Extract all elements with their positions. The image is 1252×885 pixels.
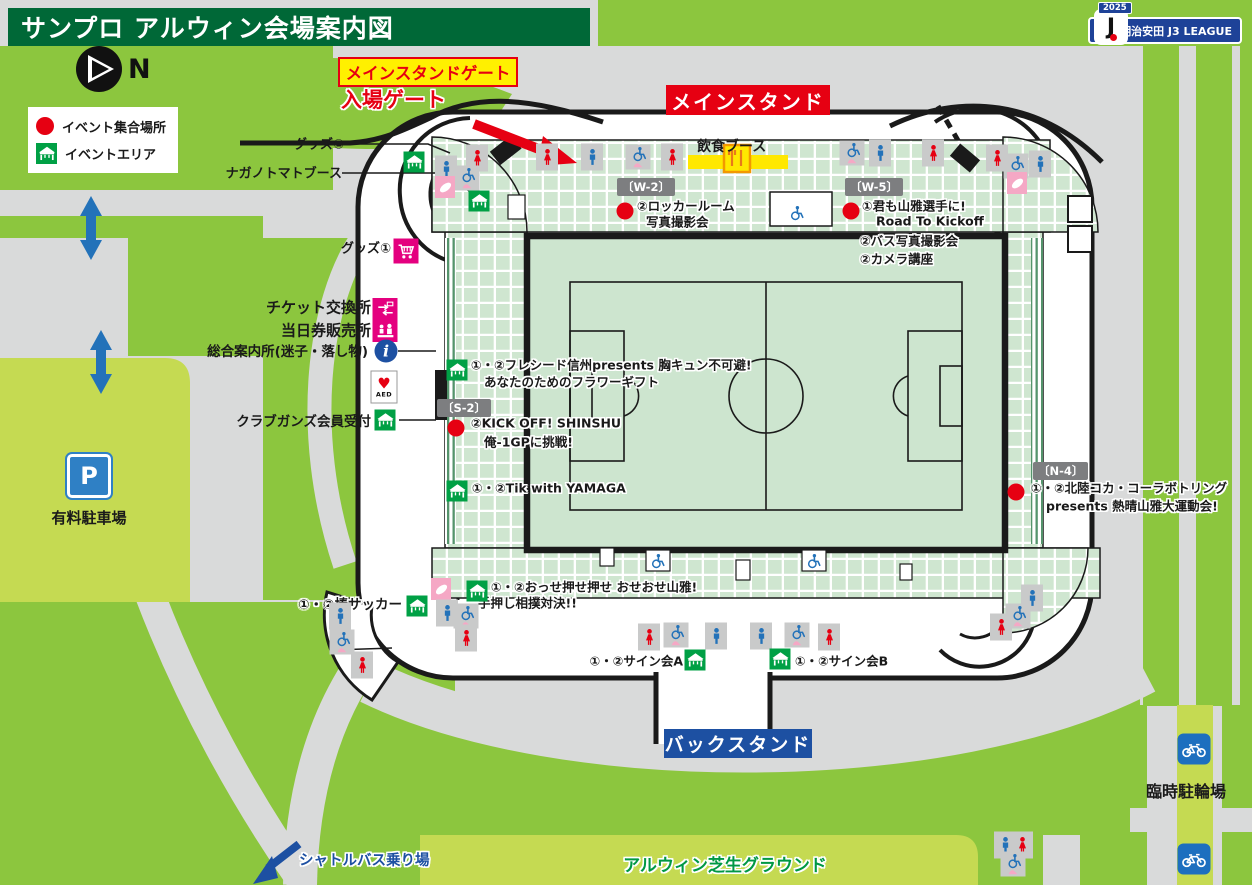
event-n4-line2: presents 熱晴山雅大運動会!: [1046, 496, 1218, 515]
event-area-tent-icon: [407, 596, 428, 617]
mens-toilet-icon: [1029, 151, 1051, 178]
event-w2-line2: 写真撮影会: [646, 212, 709, 231]
event-area-tent-icon: [447, 360, 468, 381]
nursing-room-icon: [1007, 172, 1027, 194]
accessible-toilet-icon: [785, 623, 810, 648]
back-stand-label: バックスタンド: [664, 729, 812, 758]
event-tik-line1: ①・②Tik with YAMAGA: [472, 478, 626, 497]
event-w5-line3: ②バス写真撮影会: [860, 231, 958, 250]
section-w2-label: 〔W-2〕: [617, 178, 675, 196]
womens-toilet-icon: [990, 614, 1012, 641]
event-kickoff-line1: ②KICK OFF! SHINSHU: [471, 416, 621, 431]
wheelchair-seating-icon: [787, 205, 805, 222]
food-booth-label: 飲食ブース: [697, 136, 766, 156]
event-area-tent-icon: [375, 410, 396, 431]
main-stand-label: メインスタンド: [666, 85, 830, 115]
bicycle-parking-icon: [1178, 844, 1211, 875]
north-compass: N: [76, 46, 186, 96]
accessible-toilet-icon: [626, 145, 651, 170]
accessible-toilet-icon: [455, 166, 480, 191]
womens-toilet-icon: [638, 624, 660, 651]
page-title: サンプロ アルウィン会場案内図: [8, 9, 394, 45]
map-background: [0, 0, 1252, 885]
event-meeting-point-icon: [448, 420, 465, 437]
accessible-toilet-icon: [664, 623, 689, 648]
event-kickoff-line2: 俺-1GPに挑戦!: [484, 432, 573, 451]
event-meeting-point-icon: [617, 203, 634, 220]
compass-north-label: N: [128, 54, 151, 85]
womens-toilet-icon: [536, 144, 558, 171]
womens-toilet-icon: [922, 140, 944, 167]
legend-area-label: イベントエリア: [65, 144, 156, 163]
wheelchair-seating-icon: [804, 553, 822, 570]
event-area-tent-icon: [685, 650, 706, 671]
venue-map: サンプロ アルウィン会場案内図 2025 J 明治安田 J3 LEAGUE N …: [0, 0, 1252, 885]
mens-toilet-icon: [581, 144, 603, 171]
compass-arrow-inner: [92, 60, 109, 78]
event-w5-line4: ②カメラ講座: [860, 249, 933, 268]
womens-toilet-icon: [455, 625, 477, 652]
legend-meeting-point: イベント集合場所: [36, 117, 178, 136]
event-area-tent-icon: [404, 152, 425, 173]
section-s2-label: 〔S-2〕: [437, 399, 491, 417]
event-area-tent-icon: [447, 481, 468, 502]
event-w5-line1: ①君も山雅選手に!: [862, 196, 966, 215]
same-day-ticket-label: 当日券販売所: [281, 320, 371, 341]
parking-icon: P: [67, 454, 111, 498]
mens-toilet-icon: [869, 140, 891, 167]
j-league-crest-dot: [1110, 34, 1117, 41]
ticket-exchange-icon: [373, 298, 398, 320]
event-area-tent-icon: [36, 143, 57, 164]
event-n4-line1: ①・②北陸コカ・コーラボトリング: [1031, 478, 1227, 497]
event-meeting-point-icon: [1008, 484, 1025, 501]
event-sign-b-label: ①・②サイン会B: [795, 651, 888, 670]
goods-shop-icon: [394, 239, 419, 264]
ticket-exchange-label: チケット交換所: [266, 297, 371, 318]
paid-parking-label: 有料駐車場: [28, 507, 150, 528]
event-meeting-point-icon: [36, 117, 54, 135]
j3-league-logo: 2025 J 明治安田 J3 LEAGUE: [1088, 2, 1244, 46]
nagano-tomato-booth-label: ナガノトマトブース: [226, 163, 342, 182]
info-center-label: 総合案内所(迷子・落し物): [207, 340, 368, 360]
entrance-gate-label: 入場ゲート: [341, 84, 446, 114]
goods1-label: グッズ①: [341, 238, 391, 257]
j3-league-name: 明治安田 J3 LEAGUE: [1120, 23, 1240, 39]
j3-year-badge: 2025: [1098, 2, 1132, 14]
event-w5-line2: Road To Kickoff: [876, 214, 984, 229]
event-flower-line2: あなたのためのフラワーギフト: [484, 372, 659, 391]
accessible-toilet-icon: [840, 141, 865, 166]
page-title-bar: サンプロ アルウィン会場案内図: [8, 8, 590, 46]
information-icon: i: [375, 340, 398, 363]
goods2-label: グッズ②: [294, 134, 344, 153]
shuttle-bus-label: シャトルバス乗り場: [299, 849, 430, 870]
map-legend: イベント集合場所 イベントエリア: [28, 107, 178, 173]
club-gahnz-label: クラブガンズ会員受付: [236, 410, 371, 430]
accessible-toilet-icon: [1001, 852, 1026, 877]
mens-toilet-icon: [329, 603, 351, 630]
event-area-tent-icon: [770, 649, 791, 670]
main-stand-gate-label: メインスタンドゲート: [338, 57, 518, 87]
event-area-tent-icon: [467, 581, 488, 602]
lawn-ground-label: アルウィン芝生グラウンド: [560, 851, 890, 876]
event-area-tent-icon: [469, 191, 490, 212]
aed-icon: ♥AED: [371, 371, 398, 404]
event-osse-line2: 手押し相撲対決!!: [478, 593, 577, 612]
bicycle-parking-icon: [1178, 734, 1211, 765]
event-meeting-point-icon: [843, 203, 860, 220]
event-sign-a-label: ①・②サイン会A: [590, 651, 683, 670]
bicycle-parking-label: 臨時駐輪場: [1146, 778, 1226, 802]
legend-meeting-label: イベント集合場所: [62, 117, 166, 136]
mens-toilet-icon: [750, 623, 772, 650]
nursing-room-icon: [431, 578, 451, 600]
nursing-room-icon: [435, 176, 455, 198]
wheelchair-seating-icon: [648, 553, 666, 570]
womens-toilet-icon: [351, 652, 373, 679]
mens-toilet-icon: [705, 623, 727, 650]
womens-toilet-icon: [818, 624, 840, 651]
womens-toilet-icon: [661, 144, 683, 171]
section-w5-label: 〔W-5〕: [845, 178, 903, 196]
legend-event-area: イベントエリア: [36, 143, 178, 164]
